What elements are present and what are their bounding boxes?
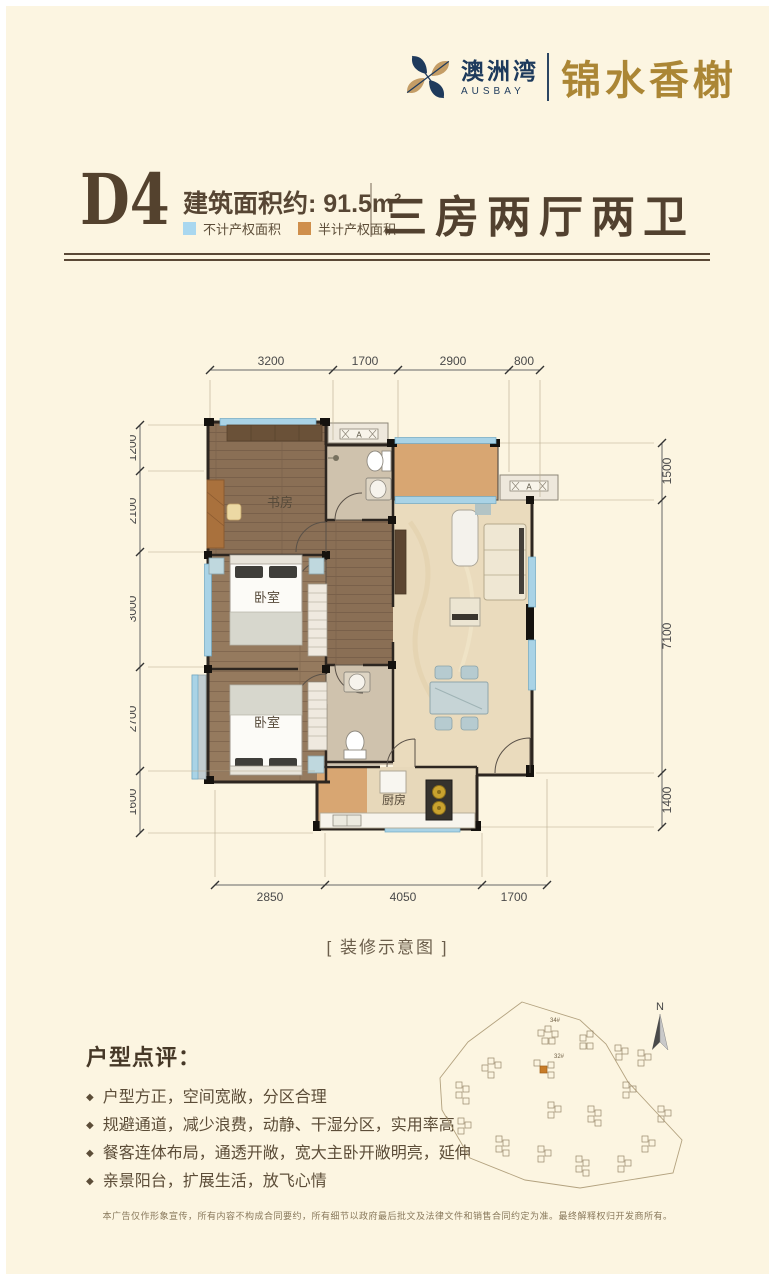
- room-label-study: 书房: [267, 495, 293, 510]
- dim-bottom-1: 2850: [257, 890, 284, 904]
- site-boundary: [440, 1002, 682, 1188]
- layout-description: 三房两厅两卫: [383, 181, 695, 245]
- dim-left-1: 1200: [130, 434, 139, 461]
- dim-left-4: 2700: [130, 705, 139, 732]
- dim-right-2: 7100: [660, 622, 674, 649]
- review-point: 餐客连体布局，通透开敞，宽大主卧开敞明亮，延伸: [103, 1140, 471, 1168]
- review-point: 户型方正，空间宽敞，分区合理: [103, 1084, 327, 1112]
- site-map-svg: 34# 32# N: [430, 990, 692, 1198]
- floorplan: A A: [130, 352, 675, 910]
- site-buildings: [456, 1026, 671, 1176]
- dim-top-2: 1700: [352, 354, 379, 368]
- dim-bottom-3: 1700: [501, 890, 528, 904]
- review-item: ◆餐客连体布局，通透开敞，宽大主卧开敞明亮，延伸: [86, 1140, 446, 1168]
- dim-left-5: 1600: [130, 788, 139, 815]
- ac-platform-top: A: [328, 423, 388, 443]
- brand-text: 澳洲湾 AUSBAY: [461, 58, 539, 97]
- dim-left-2: 2100: [130, 497, 139, 524]
- compass-icon: N: [652, 1001, 668, 1050]
- legend-label-blue: 不计产权面积: [203, 219, 281, 238]
- review-item: ◆亲景阳台，扩展生活，放飞心情: [86, 1168, 446, 1196]
- double-rule: [64, 253, 710, 265]
- poster: 澳洲湾 AUSBAY 锦水香榭 D4 建筑面积约: 91.5m2 不计产权面积 …: [0, 0, 775, 1280]
- dim-right-3: 1400: [660, 786, 674, 813]
- dim-bottom-2: 4050: [390, 890, 417, 904]
- legend-swatch-blue: [183, 222, 196, 235]
- review-point: 亲景阳台，扩展生活，放飞心情: [103, 1168, 327, 1196]
- diamond-bullet-icon: ◆: [86, 1168, 94, 1196]
- site-highlighted-building: [540, 1066, 547, 1073]
- plan-caption: [ 装修示意图 ]: [0, 933, 775, 958]
- review-point: 规避通道，减少浪费，动静、干湿分区，实用率高: [103, 1112, 455, 1140]
- dim-top-1: 3200: [258, 354, 285, 368]
- diamond-bullet-icon: ◆: [86, 1084, 94, 1112]
- title-divider: [370, 183, 372, 237]
- area-label: 建筑面积约:: [183, 190, 316, 218]
- review-title: 户型点评：: [86, 1040, 446, 1072]
- site-map: 34# 32# N: [430, 990, 692, 1198]
- dim-top-3: 2900: [440, 354, 467, 368]
- area-text: 建筑面积约: 91.5m2: [183, 184, 401, 220]
- ac-label: A: [356, 431, 362, 440]
- header: 澳洲湾 AUSBAY 锦水香榭: [403, 46, 737, 108]
- brand-name-en: AUSBAY: [461, 86, 539, 97]
- dim-right-1: 1500: [660, 457, 674, 484]
- unit-code: D4: [80, 164, 170, 236]
- legend-swatch-orange: [298, 222, 311, 235]
- diamond-bullet-icon: ◆: [86, 1112, 94, 1140]
- floorplan-svg: A A: [130, 352, 675, 910]
- room-label-bedroom1: 卧室: [254, 590, 280, 605]
- brand-logo-icon: [403, 51, 453, 103]
- project-name: 锦水香榭: [561, 48, 737, 106]
- room-label-bedroom2: 卧室: [254, 715, 280, 730]
- review-section: 户型点评： ◆户型方正，空间宽敞，分区合理 ◆规避通道，减少浪费，动静、干湿分区…: [86, 1040, 446, 1196]
- disclaimer-text: 本广告仅作形象宣传，所有内容不构成合同要约，所有细节以政府最后批文及法律文件和销…: [0, 1209, 775, 1222]
- dim-left-3: 3000: [130, 595, 139, 622]
- review-item: ◆户型方正，空间宽敞，分区合理: [86, 1084, 446, 1112]
- diamond-bullet-icon: ◆: [86, 1140, 94, 1168]
- brand-name-cn: 澳洲湾: [461, 58, 539, 84]
- site-building-label: 34#: [550, 1018, 561, 1024]
- review-item: ◆规避通道，减少浪费，动静、干湿分区，实用率高: [86, 1112, 446, 1140]
- dim-top-4: 800: [514, 354, 534, 368]
- area-legend: 不计产权面积 半计产权面积: [183, 219, 396, 238]
- room-label-kitchen: 厨房: [382, 792, 406, 807]
- site-building-label: 32#: [554, 1054, 565, 1060]
- review-list: ◆户型方正，空间宽敞，分区合理 ◆规避通道，减少浪费，动静、干湿分区，实用率高 …: [86, 1084, 446, 1196]
- logo-divider: [547, 53, 549, 101]
- compass-label: N: [656, 1001, 664, 1013]
- ac-label: A: [526, 483, 532, 492]
